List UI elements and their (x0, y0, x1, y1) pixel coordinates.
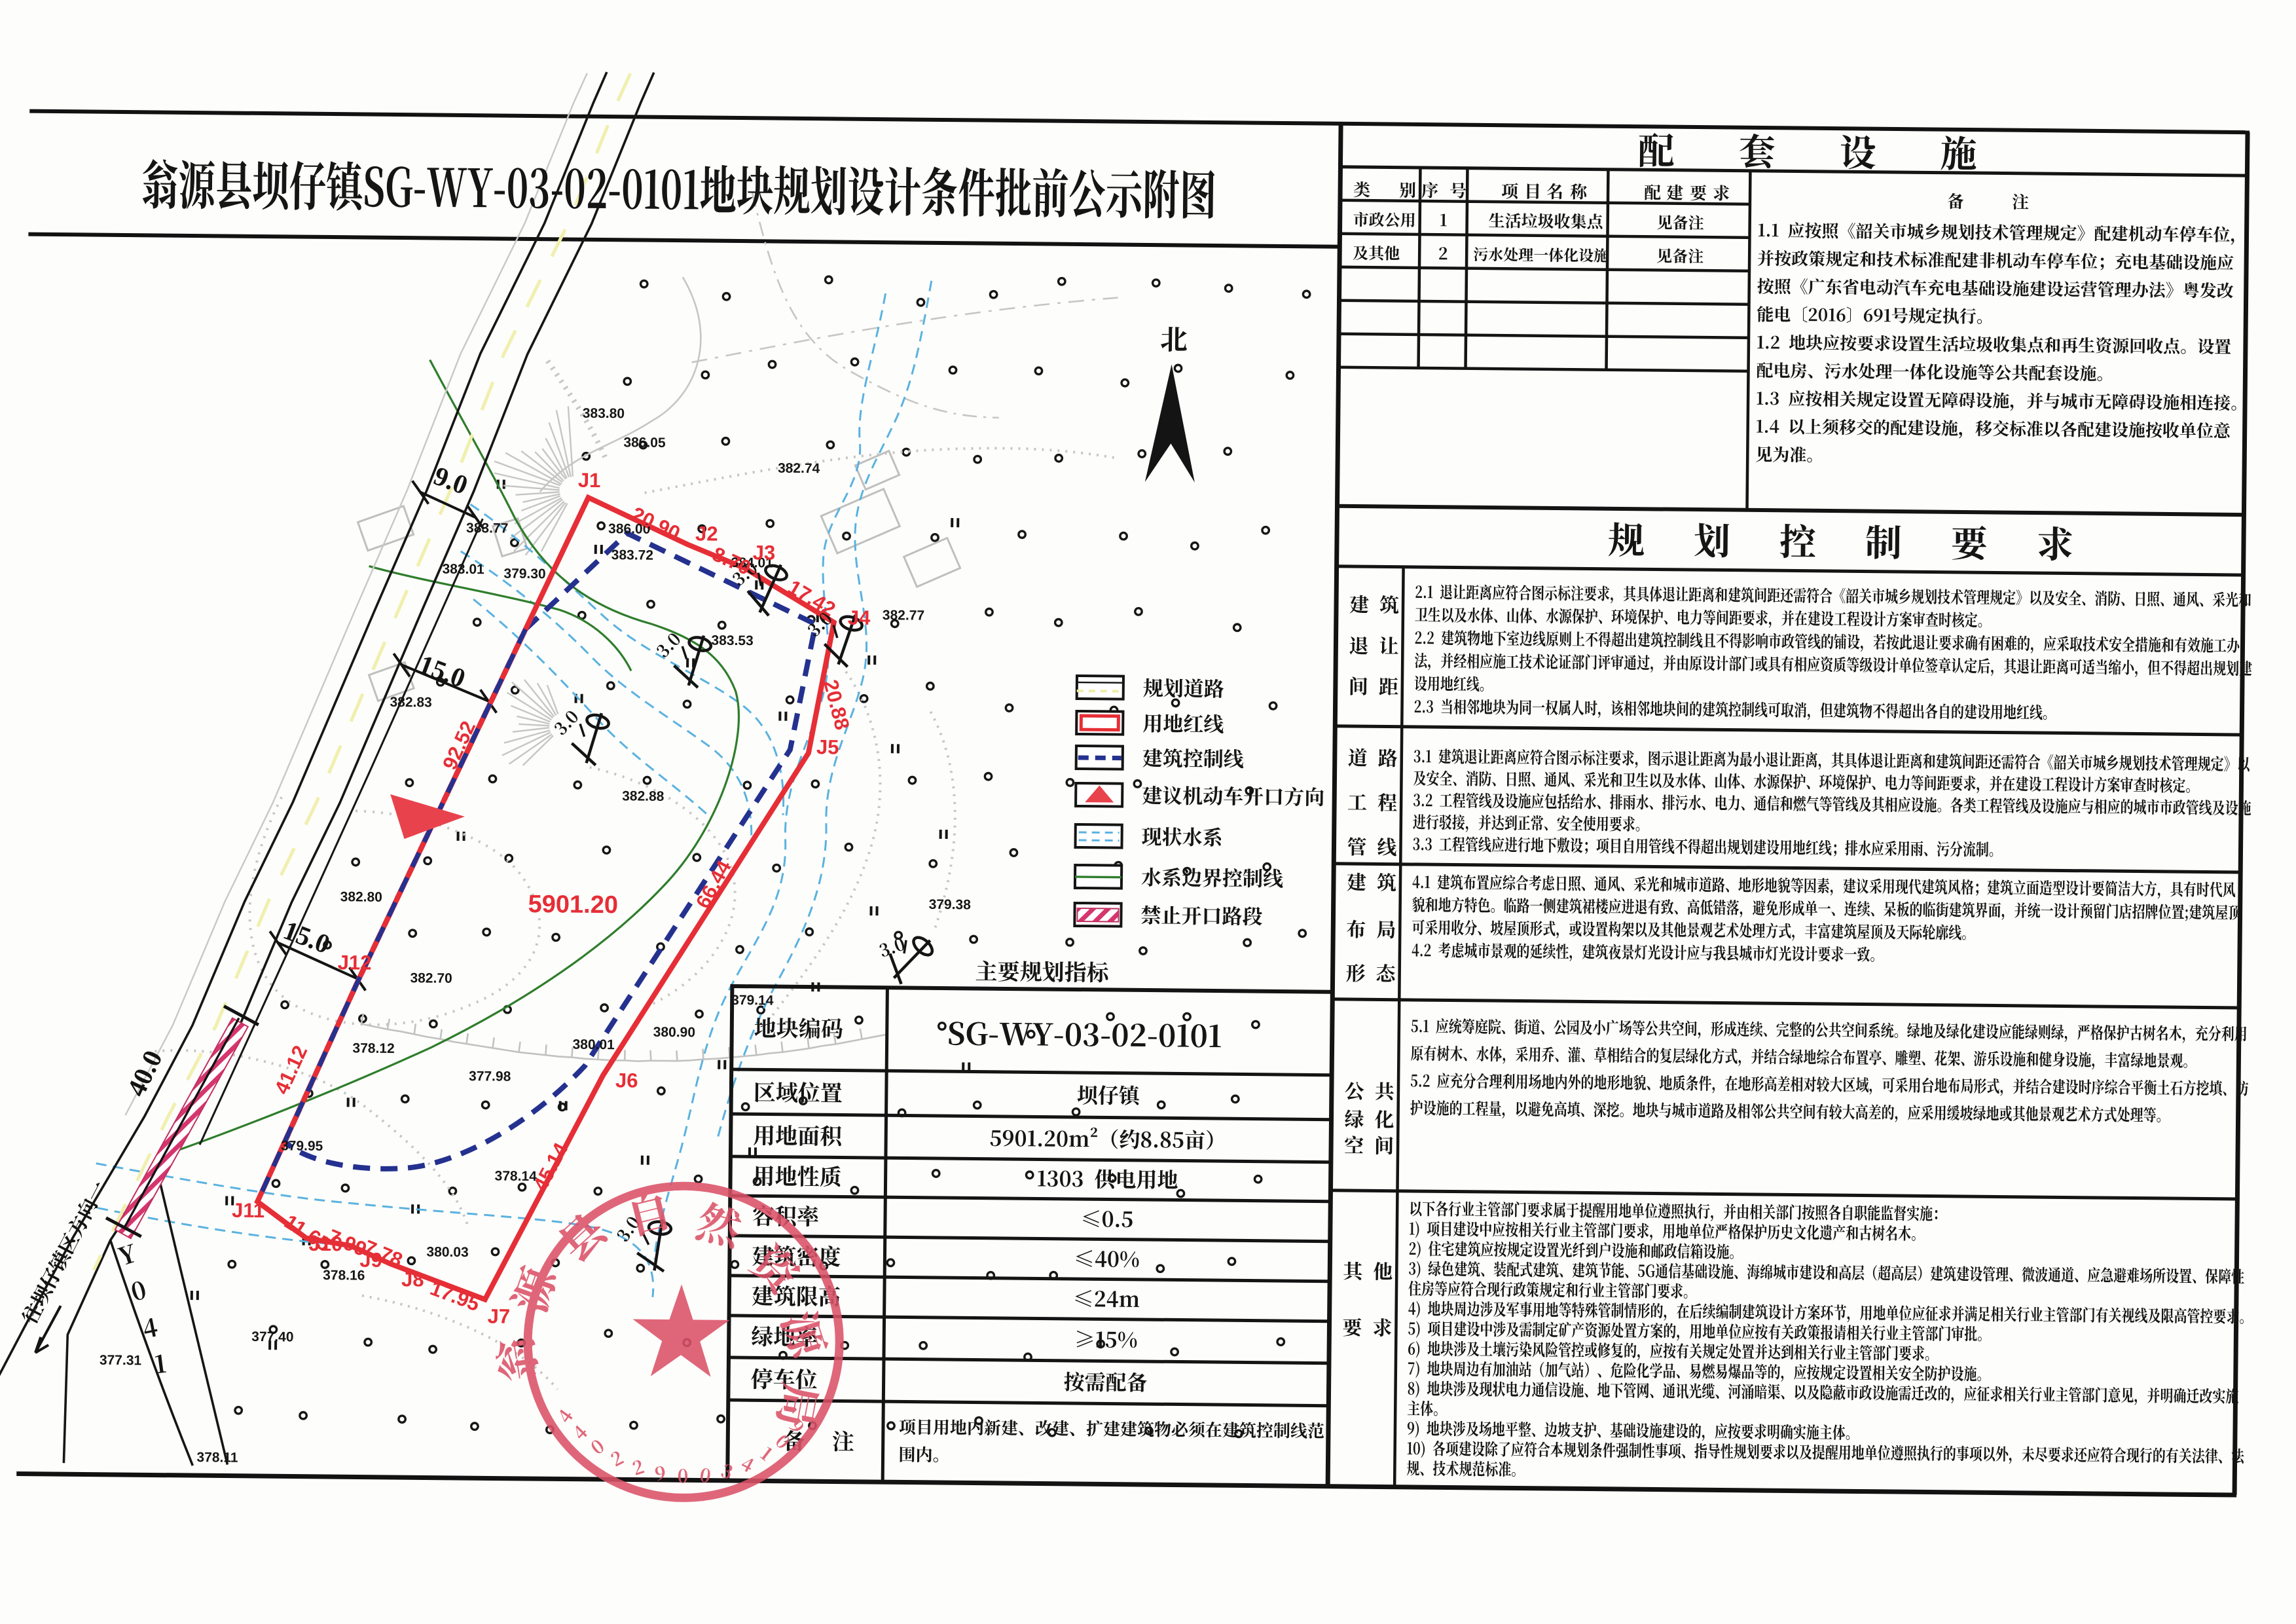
svg-text:383.53: 383.53 (711, 633, 753, 649)
svg-text:377.98: 377.98 (469, 1069, 511, 1084)
svg-text:380.90: 380.90 (653, 1025, 695, 1041)
svg-text:377.40: 377.40 (251, 1329, 293, 1345)
svg-text:382.80: 382.80 (340, 889, 382, 905)
svg-text:J7: J7 (487, 1304, 510, 1327)
svg-text:J6: J6 (615, 1069, 638, 1092)
svg-text:382.77: 382.77 (883, 608, 924, 623)
svg-text:J11: J11 (232, 1199, 264, 1222)
svg-text:379.30: 379.30 (503, 566, 545, 582)
svg-text:378.11: 378.11 (196, 1450, 238, 1466)
svg-text:J12: J12 (338, 951, 372, 974)
svg-text:5901.20: 5901.20 (528, 891, 618, 919)
svg-text:386.05: 386.05 (623, 435, 666, 451)
svg-text:378.16: 378.16 (323, 1268, 365, 1283)
svg-text:383.77: 383.77 (466, 521, 508, 536)
svg-text:382.70: 382.70 (410, 970, 452, 986)
svg-text:379.38: 379.38 (929, 897, 972, 913)
svg-text:379.95: 379.95 (281, 1138, 323, 1154)
svg-text:J1: J1 (578, 469, 601, 492)
svg-text:379.14: 379.14 (731, 993, 774, 1008)
svg-text:J8: J8 (401, 1268, 424, 1291)
svg-text:J5: J5 (816, 735, 839, 758)
svg-text:383.80: 383.80 (583, 406, 625, 422)
svg-text:382.74: 382.74 (778, 461, 820, 477)
svg-text:J3: J3 (753, 541, 776, 564)
svg-text:380.01: 380.01 (572, 1037, 615, 1053)
svg-text:382.88: 382.88 (622, 788, 665, 804)
svg-text:378.12: 378.12 (352, 1041, 394, 1056)
svg-text:383.72: 383.72 (611, 547, 653, 563)
svg-text:382.83: 382.83 (390, 695, 431, 710)
svg-text:J4: J4 (848, 606, 871, 629)
svg-text:380.03: 380.03 (426, 1244, 468, 1260)
svg-text:J2: J2 (695, 522, 718, 545)
svg-text:377.31: 377.31 (100, 1353, 142, 1369)
svg-text:383.01: 383.01 (442, 562, 484, 578)
